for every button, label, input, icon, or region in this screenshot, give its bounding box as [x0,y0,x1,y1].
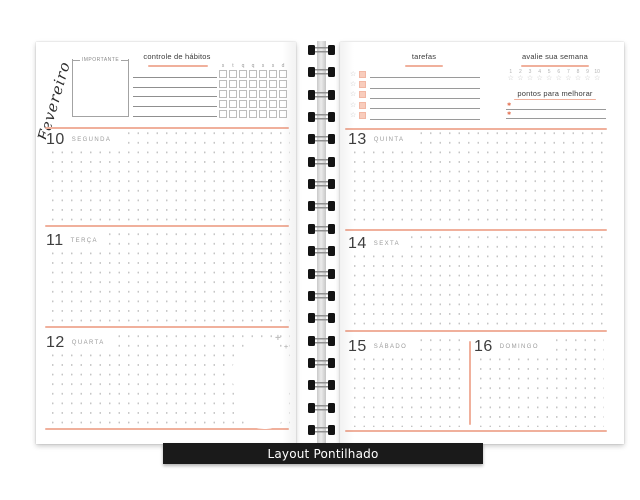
habit-checkbox [229,90,237,98]
day-label: 14 SEXTA [348,236,410,254]
ring-clip [328,313,335,323]
day-number: 16 [474,339,493,354]
habit-checkbox [269,70,277,78]
spiral-ring [308,112,335,122]
ring-clip [328,67,335,77]
star-icon: ☆ [350,91,358,98]
improvement-lines: ✱✱ [506,100,606,119]
habit-day-initial: t [229,63,237,69]
day-name: SEGUNDA [72,137,111,143]
rating-scale: 1☆2☆3☆4☆5☆6☆7☆8☆9☆10☆ [506,69,602,83]
star-icon: ☆ [350,112,358,119]
habit-checkbox [279,80,287,88]
accent-divider-line [45,428,289,430]
improvements-title: pontos para melhorar [503,89,607,98]
ring-clip [328,201,335,211]
habit-checkbox [219,90,227,98]
habit-day-initial: q [249,63,257,69]
spiral-ring [308,380,335,390]
ring-wire [315,134,328,144]
day-label: 12 QUARTA [46,335,115,353]
habit-checkbox [239,70,247,78]
important-box: IMPORTANTE [72,59,129,117]
star-icon: ☆ [544,75,554,83]
ring-wire [315,45,328,55]
day-number: 15 [348,339,367,354]
ring-wire [315,179,328,189]
sparkle-icon: + [275,334,281,344]
ring-wire [315,246,328,256]
spiral-binding [308,42,335,446]
task-writing-line [370,101,480,109]
ring-clip [308,291,315,301]
star-icon: ☆ [350,71,358,78]
ring-clip [308,269,315,279]
habit-checkbox [239,100,247,108]
important-box-label: IMPORTANTE [80,57,121,63]
accent-divider-line [45,127,289,129]
ring-clip [308,157,315,167]
planner-left-page: Fevereiro IMPORTANTE controle de hábitos… [36,42,296,444]
task-checkbox [359,102,366,109]
accent-divider-line [45,225,289,227]
habit-note-line [133,77,217,78]
day-name: QUARTA [72,340,105,346]
habit-checkbox [229,110,237,118]
weekend-divider-line [469,341,471,425]
habit-day-initial: s [269,63,277,69]
planner-right-page: tarefas ☆☆☆☆☆ avalie sua semana 1☆2☆3☆4☆… [340,42,624,444]
ring-wire [315,403,328,413]
day-name: SÁBADO [374,344,407,350]
day-number: 14 [348,236,367,251]
ring-clip [308,313,315,323]
spiral-ring [308,269,335,279]
ring-clip [328,380,335,390]
ring-clip [308,67,315,77]
week-rating-title: avalie sua semana [497,52,613,61]
ring-clip [328,269,335,279]
ring-clip [328,336,335,346]
task-checkbox [359,112,366,119]
spiral-ring [308,134,335,144]
sparkle-icon: + [284,344,288,351]
star-icon: ☆ [516,75,526,83]
task-writing-line [370,70,480,78]
ring-wire [315,224,328,234]
rating-column: 8☆ [573,69,583,83]
asterisk-icon: ✱ [507,112,511,117]
spiral-ring [308,336,335,346]
spiral-ring [308,90,335,100]
day-name: QUINTA [374,137,405,143]
product-label-text: Layout Pontilhado [267,447,378,461]
day-label: 16 DOMINGO [474,339,549,357]
habit-checkbox [229,80,237,88]
rating-column: 1☆ [506,69,516,83]
ring-wire [315,313,328,323]
habit-note-line [133,116,217,117]
product-label-bar: Layout Pontilhado [163,443,483,464]
accent-divider-line [345,330,607,332]
day-name: SEXTA [374,241,400,247]
habit-checkbox [269,80,277,88]
day-label: 10 SEGUNDA [46,132,121,150]
ring-clip [328,425,335,435]
accent-divider-line [345,128,607,130]
improvement-row: ✱ [506,100,606,110]
habit-checkbox [219,70,227,78]
ring-clip [328,45,335,55]
day-name: TERÇA [71,238,98,244]
habit-checkbox [279,70,287,78]
habit-checkbox [239,80,247,88]
spiral-ring [308,224,335,234]
dash-line [73,60,80,61]
day-number: 12 [46,335,65,350]
ring-wire [315,380,328,390]
ring-clip [328,157,335,167]
rating-column: 3☆ [525,69,535,83]
ring-wire [315,336,328,346]
accent-divider-line [345,229,607,231]
habit-checkbox [269,100,277,108]
habit-tracker-title: controle de hábitos [129,52,225,61]
ring-clip [328,358,335,368]
task-row: ☆ [350,79,480,89]
spiral-ring [308,45,335,55]
task-writing-line [370,91,480,99]
habit-day-initial: s [259,63,267,69]
star-icon: ☆ [583,75,593,83]
habit-checkbox [269,110,277,118]
spiral-ring [308,425,335,435]
habit-checkbox [219,80,227,88]
habit-note-line [133,106,217,107]
ring-clip [308,201,315,211]
ring-clip [328,179,335,189]
spiral-ring [308,358,335,368]
rating-column: 2☆ [516,69,526,83]
habit-checkbox [259,90,267,98]
day-section-tuesday: 11 TERÇA [44,233,290,325]
habit-checkbox [249,100,257,108]
habit-checkbox [279,90,287,98]
star-icon: ☆ [350,81,358,88]
improvement-row: ✱ [506,110,606,120]
day-section-friday: 14 SEXTA [346,236,604,328]
ring-clip [308,425,315,435]
ring-wire [315,157,328,167]
day-label: 11 TERÇA [46,233,108,251]
tasks-title: tarefas [380,52,468,61]
habit-checkbox [239,110,247,118]
task-row: ☆ [350,69,480,79]
ring-clip [328,403,335,413]
day-number: 13 [348,132,367,147]
asterisk-icon: ✱ [507,103,511,108]
habit-day-initial: q [239,63,247,69]
rating-column: 9☆ [583,69,593,83]
ring-wire [315,112,328,122]
ring-clip [308,90,315,100]
day-section-sunday: 16 DOMINGO [472,339,604,427]
ring-clip [328,291,335,301]
spiral-ring [308,246,335,256]
rating-column: 5☆ [544,69,554,83]
day-name: DOMINGO [500,344,539,350]
task-writing-line [370,81,480,89]
ring-clip [328,112,335,122]
day-number: 11 [46,233,64,248]
dash-line [121,60,128,61]
ring-clip [308,112,315,122]
habit-checkbox [259,70,267,78]
ring-clip [328,134,335,144]
ring-clip [308,224,315,234]
spiral-ring [308,313,335,323]
habit-checkbox [219,100,227,108]
habit-checkbox [219,110,227,118]
star-icon: ☆ [506,75,516,83]
ring-wire [315,358,328,368]
ring-wire [315,90,328,100]
ring-clip [308,336,315,346]
star-icon: ☆ [573,75,583,83]
spiral-ring [308,201,335,211]
habit-checkbox [239,90,247,98]
white-blob-overlay [240,387,286,429]
star-icon: ☆ [525,75,535,83]
ring-clip [308,358,315,368]
ring-clip [308,380,315,390]
task-row: ☆ [350,90,480,100]
spiral-ring [308,291,335,301]
habit-checkbox [229,70,237,78]
task-row: ☆ [350,100,480,110]
spiral-ring [308,67,335,77]
star-icon: ☆ [554,75,564,83]
rating-column: 7☆ [564,69,574,83]
habit-checkbox [269,90,277,98]
ring-clip [308,134,315,144]
ring-clip [328,90,335,100]
spiral-ring [308,179,335,189]
important-box-top: IMPORTANTE [73,57,128,63]
habit-checkbox [259,80,267,88]
day-label: 15 SÁBADO [348,339,417,357]
spiral-ring [308,157,335,167]
star-icon: ☆ [350,102,358,109]
star-icon: ☆ [592,75,602,83]
task-writing-line [370,112,480,120]
habit-note-lines [133,77,217,117]
day-section-saturday: 15 SÁBADO [346,339,464,427]
ring-clip [308,403,315,413]
ring-clip [308,45,315,55]
task-list: ☆☆☆☆☆ [350,69,480,121]
rating-column: 4☆ [535,69,545,83]
spiral-ring [308,403,335,413]
habit-day-initial: s [219,63,227,69]
habit-checkbox [259,100,267,108]
habit-day-initials: stqqssd [219,63,287,69]
habit-grid [219,70,287,118]
day-number: 10 [46,132,65,147]
ring-clip [328,246,335,256]
tasks-title-underline [405,65,443,67]
habit-note-line [133,87,217,88]
ring-wire [315,201,328,211]
week-rating-underline [521,65,589,67]
task-checkbox [359,91,366,98]
habit-checkbox [249,110,257,118]
ring-wire [315,67,328,77]
ring-wire [315,425,328,435]
ring-clip [328,224,335,234]
habit-checkbox [249,70,257,78]
habit-note-line [133,96,217,97]
habit-checkbox [279,100,287,108]
habit-day-initial: d [279,63,287,69]
star-icon: ☆ [564,75,574,83]
habit-checkbox [279,110,287,118]
ring-clip [308,246,315,256]
star-icon: ☆ [535,75,545,83]
ring-wire [315,269,328,279]
day-section-monday: 10 SEGUNDA [44,132,290,224]
ring-clip [308,179,315,189]
habit-checkbox [259,110,267,118]
task-checkbox [359,71,366,78]
day-label: 13 QUINTA [348,132,414,150]
accent-divider-line [45,326,289,328]
habit-checkbox [229,100,237,108]
ring-wire [315,291,328,301]
rating-column: 6☆ [554,69,564,83]
day-section-thursday: 13 QUINTA [346,132,604,224]
habit-title-underline [148,65,208,67]
rating-column: 10☆ [592,69,602,83]
habit-checkbox [249,80,257,88]
task-row: ☆ [350,111,480,121]
accent-divider-line [345,430,607,432]
task-checkbox [359,81,366,88]
habit-checkbox [249,90,257,98]
